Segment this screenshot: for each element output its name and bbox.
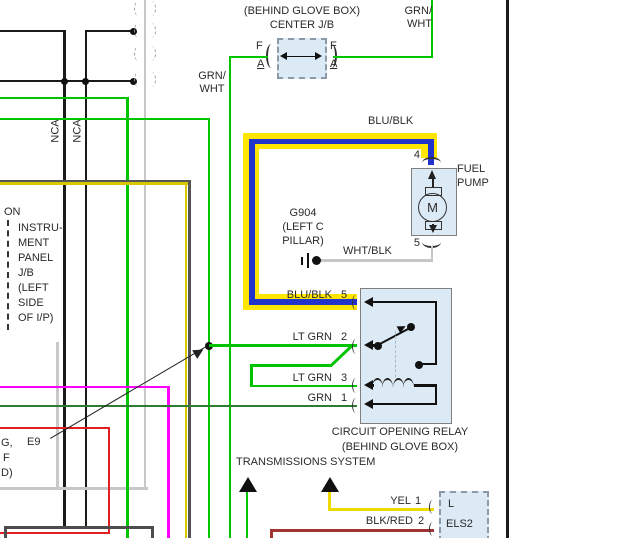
wire-lt-grn-h2 <box>0 118 210 121</box>
system-label: TRANSMISSIONS SYSTEM <box>236 456 375 469</box>
relay-internal-wire <box>371 301 437 303</box>
arrowhead-down-icon <box>429 225 437 233</box>
relay-coil-icon <box>393 378 404 389</box>
wire-lt-grn-v1 <box>126 97 129 538</box>
relay-caption: CIRCUIT OPENING RELAY <box>310 426 490 439</box>
ground-bar-icon <box>301 257 303 265</box>
connector-arc-icon <box>352 295 360 310</box>
wire-grn-wht <box>333 56 433 59</box>
jb-location-label: (BEHIND GLOVE BOX) <box>232 5 372 18</box>
nca-label-left: NCA <box>50 119 62 142</box>
wire-label-grn-wht: GRN/ WHT <box>392 5 432 31</box>
connector-arc-icon <box>147 72 156 87</box>
els2-row-label: BLK/RED <box>347 515 413 528</box>
wire-lt-grn-v2 <box>208 118 211 538</box>
e9-connector-box <box>0 427 110 534</box>
wire-yel-v <box>185 182 188 538</box>
relay-internal-wire <box>371 403 437 405</box>
fuel-pump-pin-bottom: 5 <box>408 237 420 250</box>
connector-arc-icon <box>134 1 143 16</box>
dashed-box-edge <box>7 220 9 330</box>
junction-dot <box>61 78 68 85</box>
relay-row-label: LT GRN <box>270 331 332 344</box>
double-arrow-icon <box>284 56 318 58</box>
wire-blk-v <box>188 180 191 538</box>
wire-lt-grn-branch <box>250 364 253 385</box>
connector-arc-icon <box>352 339 360 354</box>
connector-arc-icon <box>429 500 437 514</box>
jb-pin-cavity-left: A <box>257 58 264 71</box>
wire-grn-wht <box>229 56 268 59</box>
wire-yel-h <box>328 508 434 511</box>
relay-contact-dot <box>407 323 415 331</box>
wire-lt-grn-h1 <box>0 97 129 100</box>
jb-pin-row-left: F <box>256 40 263 53</box>
relay-internal-wire <box>414 384 437 386</box>
connector-arc-icon <box>147 1 156 16</box>
wire-grn-pin1 <box>0 405 357 408</box>
jb-pin-row-right: F <box>330 40 337 53</box>
relay-internal-wire <box>435 302 437 364</box>
ground-icon <box>312 256 321 265</box>
connector-arc-icon <box>429 522 437 536</box>
wire-wht-blk-h <box>317 259 433 261</box>
e9-fragment: G, <box>1 437 13 450</box>
connector-arc-icon <box>147 23 156 38</box>
arrowhead-left-icon <box>280 52 287 60</box>
nca-label-right: NCA <box>72 119 84 142</box>
wiring-diagram: NCA NCA (BEHIND GLOVE BOX) CENTER J/B F … <box>0 0 625 538</box>
relay-link-dashed <box>395 331 396 382</box>
wire-gray-connector-line <box>144 0 147 489</box>
relay-caption-location: (BEHIND GLOVE BOX) <box>310 441 490 454</box>
wire-lt-grn-diagonal <box>330 345 352 366</box>
connector-arc-icon <box>134 46 143 61</box>
junction-dot <box>82 78 89 85</box>
wire-label-blu-blk: BLU/BLK <box>368 115 413 128</box>
els2-row-pin: 2 <box>415 515 427 528</box>
relay-internal-wire <box>435 385 437 404</box>
els2-row-pin: 1 <box>412 495 424 508</box>
instrument-panel-label: INSTRU- MENT PANEL J/B (LEFT SIDE OF I/P… <box>18 221 63 326</box>
wire-label-grn-wht: GRN/ WHT <box>192 70 232 96</box>
wire-magenta-h <box>0 386 170 389</box>
wire-label-wht-blk: WHT/BLK <box>343 245 392 258</box>
wire-blu-blk <box>249 139 431 145</box>
ground-id-label: G904 <box>272 206 334 220</box>
relay-row-pin: 1 <box>338 392 350 405</box>
relay-row-label: LT GRN <box>270 372 332 385</box>
ground-bar-icon <box>307 253 310 268</box>
wire-yel-h <box>0 182 188 185</box>
connector-arc-icon <box>352 398 360 413</box>
jb-pin-cavity-right: A <box>330 58 337 71</box>
wire-magenta-v <box>167 386 170 538</box>
relay-coil-icon <box>372 378 383 389</box>
wire-lt-grn-pin2 <box>209 344 357 347</box>
fuel-pump-pin-top: 4 <box>408 149 420 162</box>
els2-row-label: YEL <box>355 495 411 508</box>
wire-grn-wht-down <box>229 56 232 538</box>
connector-arc-icon <box>134 72 143 87</box>
page-border <box>506 0 509 538</box>
wire-lt-grn-branch <box>250 364 332 367</box>
e9-fragment: D) <box>1 467 13 480</box>
off-page-arrow-icon <box>321 477 339 492</box>
wire-blk-red-h <box>270 529 434 532</box>
wire-lt-grn-pin3 <box>250 385 357 388</box>
relay-row-label: BLU/BLK <box>270 289 332 302</box>
connector-arc-icon <box>147 46 156 61</box>
wire-black-top1 <box>0 30 66 33</box>
jb-name-label: CENTER J/B <box>232 19 372 32</box>
els2-name-label: ELS2 <box>446 518 473 531</box>
e9-fragment: F <box>3 452 10 465</box>
relay-row-label: GRN <box>270 392 332 405</box>
e9-ref-label: E9 <box>27 436 40 449</box>
arrowhead-right-icon <box>315 52 322 60</box>
wire-black-top1b <box>85 30 135 33</box>
relay-row-pin: 3 <box>338 372 350 385</box>
wire-blk-red-v <box>270 529 273 538</box>
els2-cavity-label: L <box>448 498 454 511</box>
relay-row-pin: 5 <box>338 289 350 302</box>
fuel-pump-label: FUEL PUMP <box>457 162 489 190</box>
panel-label-top: ON <box>4 206 21 219</box>
connector-arc-icon <box>352 378 360 393</box>
connector-arc-icon <box>134 23 143 38</box>
wire-blu-blk <box>249 139 255 305</box>
ground-location-label: (LEFT C PILLAR) <box>272 220 334 248</box>
wire-grn-stub <box>246 492 249 538</box>
component-box-edge <box>4 526 154 538</box>
motor-icon: M <box>418 193 447 222</box>
relay-contact-dot <box>415 361 423 369</box>
relay-row-pin: 2 <box>338 331 350 344</box>
off-page-arrow-icon <box>239 477 257 492</box>
